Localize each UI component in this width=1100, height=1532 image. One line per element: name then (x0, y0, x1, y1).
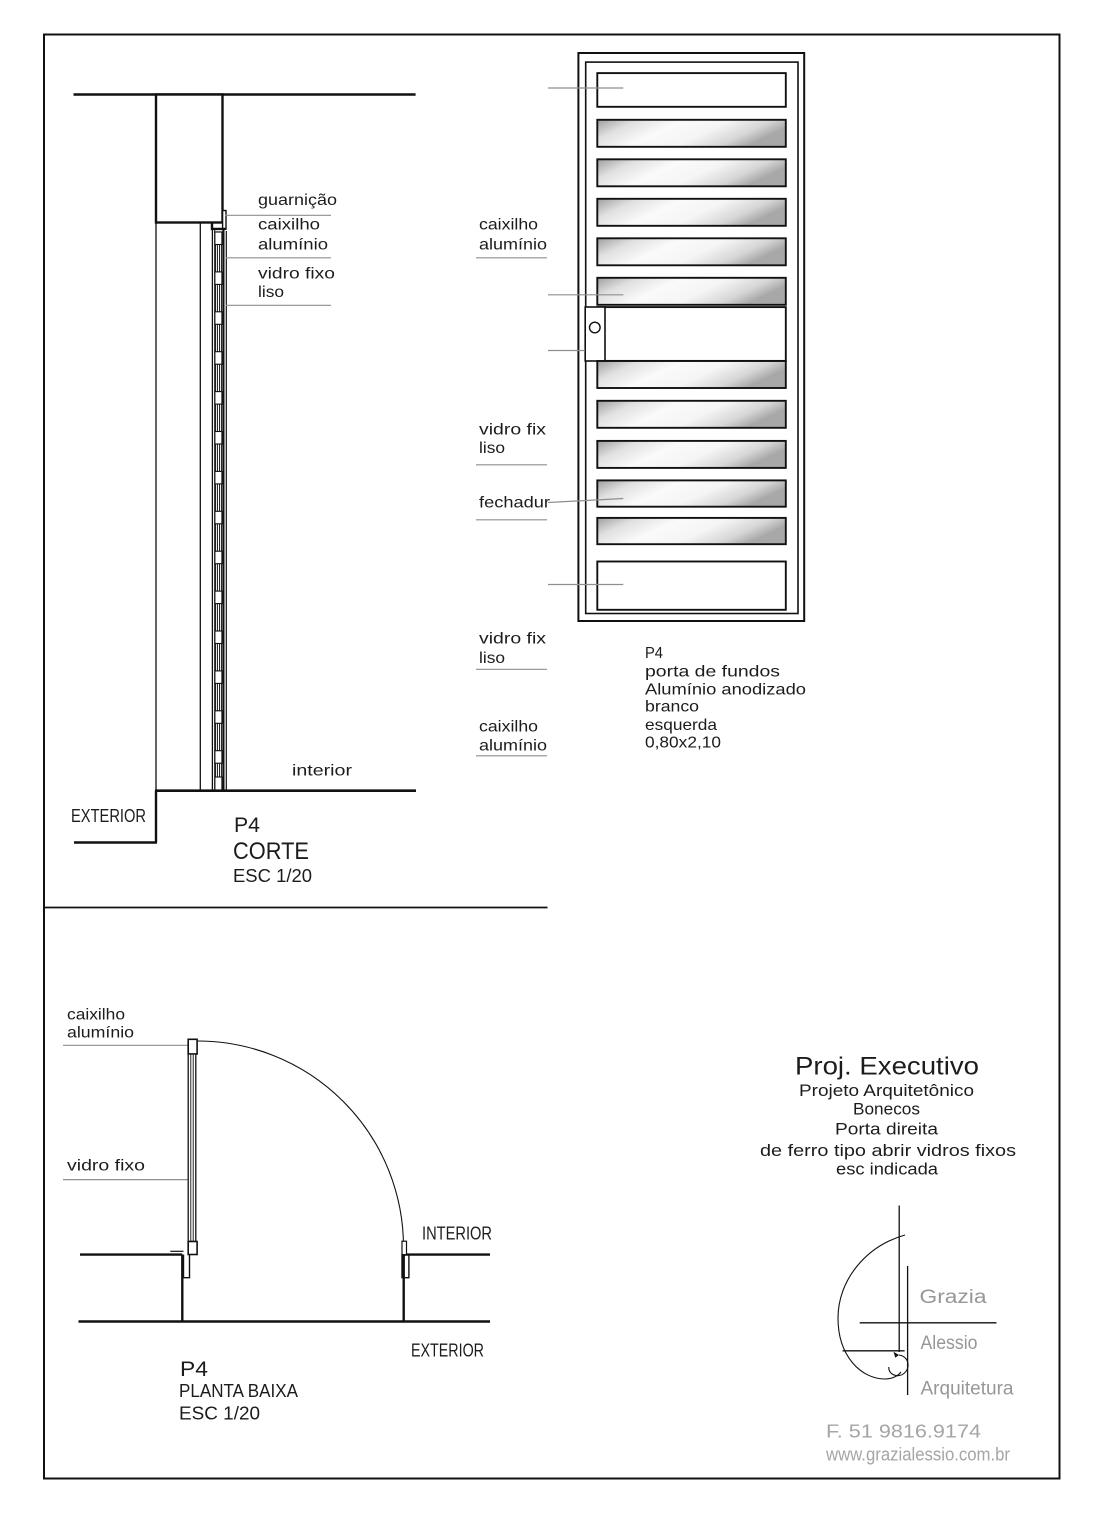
svg-text:caixilho: caixilho (479, 217, 538, 234)
svg-text:P4: P4 (180, 1358, 208, 1381)
svg-text:EXTERIOR: EXTERIOR (411, 1341, 484, 1361)
svg-text:Grazia: Grazia (920, 1287, 988, 1308)
svg-text:guarnição: guarnição (258, 192, 337, 209)
svg-text:caixilho: caixilho (479, 719, 538, 736)
svg-text:caixilho: caixilho (258, 217, 320, 234)
svg-text:INTERIOR: INTERIOR (422, 1224, 492, 1244)
svg-text:esquerda: esquerda (645, 717, 717, 734)
svg-text:esc indicada: esc indicada (836, 1160, 939, 1179)
svg-text:vidro fixo: vidro fixo (258, 266, 335, 283)
svg-text:liso: liso (479, 650, 505, 667)
svg-text:F. 51 9816.9174: F. 51 9816.9174 (826, 1422, 981, 1442)
svg-text:liso: liso (479, 440, 505, 457)
svg-text:Alessio: Alessio (921, 1333, 978, 1354)
svg-text:PLANTA BAIXA: PLANTA BAIXA (179, 1381, 298, 1401)
svg-text:vidro fix: vidro fix (479, 422, 546, 439)
svg-text:alumínio: alumínio (479, 237, 547, 254)
svg-text:P4: P4 (234, 814, 260, 837)
svg-text:de ferro tipo abrir vidros fix: de ferro tipo abrir vidros fixos (760, 1141, 1016, 1160)
svg-text:Arquitetura: Arquitetura (921, 1379, 1014, 1400)
svg-text:fechadur: fechadur (479, 495, 551, 512)
svg-text:Proj. Executivo: Proj. Executivo (795, 1053, 979, 1081)
svg-text:ESC 1/20: ESC 1/20 (179, 1404, 260, 1424)
svg-text:0,80x2,10: 0,80x2,10 (645, 735, 721, 752)
svg-text:porta de fundos: porta de fundos (645, 664, 780, 681)
svg-text:branco: branco (645, 699, 699, 716)
svg-text:liso: liso (258, 284, 284, 301)
svg-text:vidro fix: vidro fix (479, 631, 546, 648)
svg-text:ESC 1/20: ESC 1/20 (233, 866, 312, 886)
svg-text:Porta direita: Porta direita (835, 1120, 939, 1139)
svg-text:alumínio: alumínio (258, 237, 328, 254)
svg-text:vidro fixo: vidro fixo (67, 1158, 145, 1175)
svg-text:interior: interior (292, 763, 353, 780)
svg-text:Alumínio anodizado: Alumínio anodizado (645, 682, 806, 699)
svg-text:caixilho: caixilho (67, 1007, 125, 1024)
svg-text:www.grazialessio.com.br: www.grazialessio.com.br (825, 1445, 1010, 1465)
svg-text:EXTERIOR: EXTERIOR (71, 806, 146, 826)
svg-text:alumínio: alumínio (479, 738, 547, 755)
svg-text:Bonecos: Bonecos (853, 1100, 920, 1119)
svg-text:Projeto Arquitetônico: Projeto Arquitetônico (799, 1081, 974, 1100)
svg-text:CORTE: CORTE (233, 838, 309, 865)
svg-text:alumínio: alumínio (67, 1025, 134, 1042)
svg-text:P4: P4 (645, 645, 663, 662)
